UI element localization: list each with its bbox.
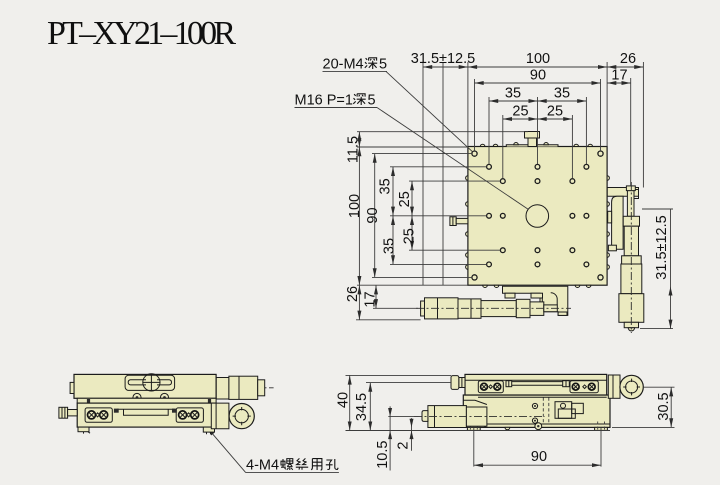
svg-text:25: 25 xyxy=(512,104,528,120)
svg-text:35: 35 xyxy=(505,86,521,102)
svg-text:100: 100 xyxy=(347,194,363,218)
svg-text:25: 25 xyxy=(402,228,418,244)
svg-text:90: 90 xyxy=(530,68,546,84)
svg-text:25: 25 xyxy=(547,104,563,120)
svg-text:10.5: 10.5 xyxy=(375,441,391,469)
svg-text:17: 17 xyxy=(611,68,627,84)
svg-text:M16 P=1: M16 P=1 xyxy=(295,93,353,109)
svg-text:35: 35 xyxy=(382,238,398,254)
svg-text:5: 5 xyxy=(379,57,387,73)
svg-text:4-M4: 4-M4 xyxy=(246,458,279,474)
svg-text:35: 35 xyxy=(378,178,394,194)
svg-text:34.5: 34.5 xyxy=(354,393,370,421)
svg-text:26: 26 xyxy=(620,51,636,67)
svg-text:25: 25 xyxy=(397,191,413,207)
svg-text:2: 2 xyxy=(396,442,412,450)
svg-text:90: 90 xyxy=(365,207,381,223)
svg-text:31.5±12.5: 31.5±12.5 xyxy=(411,51,475,67)
svg-text:5: 5 xyxy=(368,93,376,109)
svg-text:100: 100 xyxy=(526,51,550,67)
svg-text:20-M4: 20-M4 xyxy=(323,57,364,73)
svg-text:30.5: 30.5 xyxy=(656,392,672,420)
svg-text:40: 40 xyxy=(336,392,352,408)
svg-text:17: 17 xyxy=(363,291,379,307)
svg-text:90: 90 xyxy=(531,449,547,465)
svg-text:26: 26 xyxy=(345,286,361,302)
svg-text:35: 35 xyxy=(554,86,570,102)
svg-text:PT–XY21–100R: PT–XY21–100R xyxy=(47,15,236,52)
svg-text:31.5±12.5: 31.5±12.5 xyxy=(654,215,670,279)
